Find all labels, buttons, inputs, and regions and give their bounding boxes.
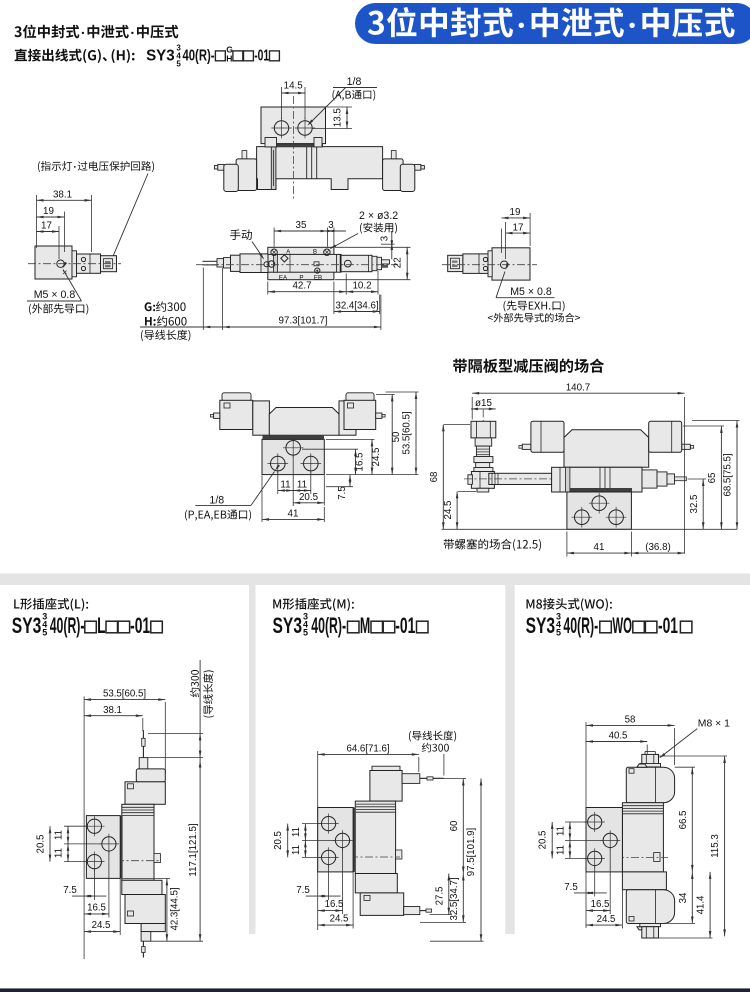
svg-text:-01: -01 — [130, 613, 150, 638]
svg-text:14.5: 14.5 — [284, 81, 304, 92]
svg-text:40.5: 40.5 — [609, 731, 628, 742]
svg-text:50: 50 — [391, 431, 402, 442]
svg-text:64.6[71.6]: 64.6[71.6] — [346, 744, 389, 755]
svg-text:11: 11 — [291, 827, 302, 837]
svg-text:20.5: 20.5 — [36, 835, 47, 854]
svg-text:38.1: 38.1 — [53, 189, 72, 200]
svg-text:68: 68 — [429, 472, 440, 483]
svg-text:41.4: 41.4 — [696, 895, 707, 914]
svg-text:WO: WO — [612, 613, 632, 638]
svg-text:7.5: 7.5 — [337, 486, 348, 499]
svg-text:40(R)-: 40(R)- — [563, 613, 598, 638]
svg-text:58: 58 — [625, 715, 636, 726]
svg-text:11: 11 — [297, 480, 307, 491]
svg-text:24.5: 24.5 — [92, 920, 111, 931]
svg-text:1/8: 1/8 — [347, 76, 362, 88]
svg-text:B: B — [313, 249, 317, 255]
svg-text:40(R)-: 40(R)- — [183, 47, 215, 64]
svg-text:24.5: 24.5 — [597, 914, 616, 925]
svg-text:19: 19 — [510, 207, 521, 218]
svg-text:53.5[60.5]: 53.5[60.5] — [401, 411, 412, 454]
svg-text:41: 41 — [594, 542, 605, 553]
svg-text:68.5[75.5]: 68.5[75.5] — [722, 453, 733, 496]
svg-text:10.2: 10.2 — [352, 281, 371, 292]
svg-text:5: 5 — [303, 628, 308, 638]
svg-text:EA: EA — [279, 274, 288, 281]
svg-text:7.5: 7.5 — [296, 885, 309, 896]
svg-text:19: 19 — [43, 206, 54, 217]
svg-text:22: 22 — [393, 257, 404, 268]
svg-text:SY3: SY3 — [146, 47, 175, 64]
svg-text:3: 3 — [328, 220, 334, 231]
svg-text:7.5: 7.5 — [63, 885, 76, 896]
svg-text:97.3[101.7]: 97.3[101.7] — [278, 316, 327, 327]
svg-text:24.5: 24.5 — [330, 913, 349, 924]
svg-text:A: A — [286, 249, 290, 255]
svg-text:66.5: 66.5 — [678, 811, 689, 830]
svg-text:3: 3 — [379, 236, 390, 241]
svg-text:34: 34 — [678, 892, 689, 903]
svg-text:(36.8): (36.8) — [645, 542, 671, 553]
svg-text:20.5: 20.5 — [299, 492, 319, 503]
svg-text:-01: -01 — [254, 47, 269, 64]
svg-text:11: 11 — [555, 845, 566, 855]
svg-text:97.5[101.9]: 97.5[101.9] — [466, 828, 477, 876]
svg-text:17: 17 — [41, 221, 52, 232]
svg-text:7.5: 7.5 — [564, 882, 577, 893]
svg-text:24.5: 24.5 — [371, 448, 382, 467]
svg-text:140.7: 140.7 — [566, 382, 591, 393]
svg-text:32.5: 32.5 — [689, 495, 700, 514]
svg-text:42.7: 42.7 — [292, 281, 311, 292]
svg-text:SY3: SY3 — [526, 613, 556, 638]
svg-text:5: 5 — [556, 628, 561, 638]
svg-text:16.5: 16.5 — [87, 902, 106, 913]
svg-text:11: 11 — [291, 845, 302, 855]
svg-text:ø15: ø15 — [475, 398, 492, 409]
svg-text:EB: EB — [314, 274, 322, 281]
svg-text:11: 11 — [280, 480, 290, 491]
svg-text:M8 × 1: M8 × 1 — [698, 719, 730, 730]
svg-text:40(R)-: 40(R)- — [311, 613, 346, 638]
svg-text:38.1: 38.1 — [103, 705, 122, 716]
svg-text:M5 × 0.8: M5 × 0.8 — [510, 286, 552, 298]
svg-text:16.5: 16.5 — [325, 899, 344, 910]
svg-text:24.5: 24.5 — [443, 501, 454, 520]
svg-text:16.5: 16.5 — [591, 899, 610, 910]
svg-text:32.4[34.6]: 32.4[34.6] — [335, 301, 378, 312]
svg-text:41: 41 — [288, 509, 299, 520]
svg-text:53.5[60.5]: 53.5[60.5] — [103, 689, 146, 700]
svg-text:SY3: SY3 — [12, 613, 42, 638]
svg-text:11: 11 — [54, 848, 65, 858]
svg-text:40(R)-: 40(R)- — [50, 613, 85, 638]
svg-text:35: 35 — [296, 220, 307, 231]
svg-text:M5 × 0.8: M5 × 0.8 — [34, 289, 76, 301]
svg-text:-01: -01 — [658, 613, 678, 638]
svg-text:11: 11 — [54, 830, 65, 840]
svg-text:SY3: SY3 — [273, 613, 303, 638]
svg-text:5: 5 — [42, 628, 47, 638]
svg-text:11: 11 — [555, 826, 566, 836]
svg-text:M: M — [360, 613, 370, 638]
svg-text:L: L — [97, 613, 106, 638]
svg-text:13.5: 13.5 — [333, 108, 344, 128]
svg-text:20.5: 20.5 — [538, 831, 549, 850]
svg-text:32.5[34.7]: 32.5[34.7] — [449, 877, 460, 920]
svg-text:42.3[44.5]: 42.3[44.5] — [169, 887, 180, 930]
svg-text:20.5: 20.5 — [273, 831, 284, 850]
svg-text:27.5: 27.5 — [434, 887, 445, 906]
svg-text:17: 17 — [513, 222, 524, 233]
svg-text:60: 60 — [449, 820, 460, 831]
svg-text:65: 65 — [707, 473, 718, 484]
svg-text:2 × ø3.2: 2 × ø3.2 — [359, 210, 398, 222]
svg-text:117.1[121.5]: 117.1[121.5] — [188, 823, 199, 876]
svg-text:16.5: 16.5 — [355, 453, 366, 472]
svg-text:115.3: 115.3 — [710, 834, 721, 858]
svg-text:5: 5 — [176, 59, 181, 68]
svg-text:-01: -01 — [395, 613, 415, 638]
svg-text:1/8: 1/8 — [209, 495, 224, 507]
svg-text:H: H — [226, 54, 232, 64]
